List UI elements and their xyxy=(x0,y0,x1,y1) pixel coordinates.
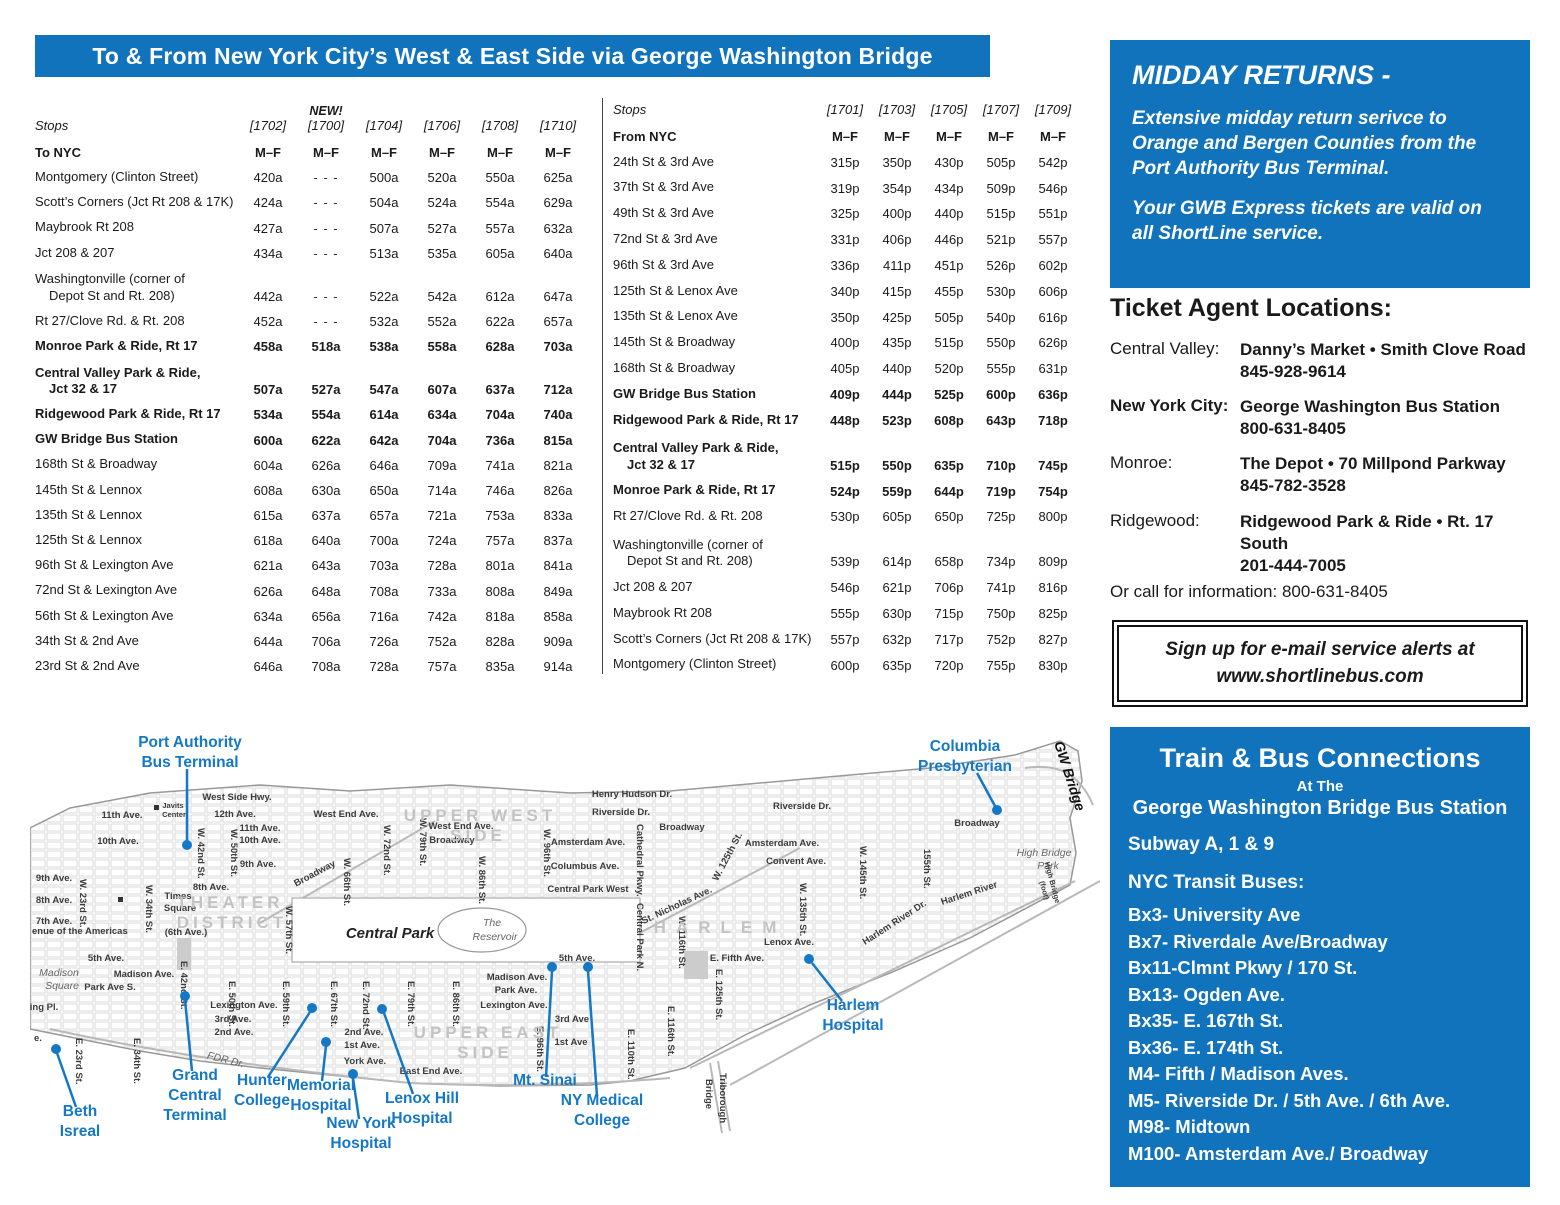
time-cell: 539p xyxy=(819,554,871,572)
time-cell: 602p xyxy=(1027,258,1079,276)
time-cell: 828a xyxy=(471,634,529,652)
time-cell: 551p xyxy=(1027,206,1079,224)
route-number: [1700] xyxy=(297,118,355,133)
time-cell: 755p xyxy=(975,658,1027,676)
stop-name-line: Scott’s Corners (Jct Rt 208 & 17K) xyxy=(613,631,819,647)
day-label: M–F xyxy=(923,129,975,147)
time-cell: 400p xyxy=(871,206,923,224)
landmark-label: Presbyterian xyxy=(918,758,1012,775)
time-cell: 622a xyxy=(297,433,355,451)
ticket-agent-entry: New York City:George Washington Bus Stat… xyxy=(1110,396,1534,440)
map-street-label: Broadway xyxy=(954,818,1000,829)
map-street-label: 10th Ave. xyxy=(239,835,281,846)
time-cell: 745p xyxy=(1027,458,1079,476)
time-cell: 558a xyxy=(413,339,471,357)
bus-route-item: Bx3- University Ave xyxy=(1128,902,1512,929)
stop-name-cell: Central Valley Park & Ride,Jct 32 & 17 xyxy=(613,440,819,476)
landmark-dot xyxy=(377,1004,387,1014)
table-row: 56th St & Lexington Ave634a656a716a742a8… xyxy=(35,602,592,627)
time-cell: 600a xyxy=(239,433,297,451)
map-street-label: Broadway xyxy=(659,822,705,833)
time-cell: 424a xyxy=(239,195,297,213)
midday-returns-paragraph-2: Your GWB Express tickets are valid on al… xyxy=(1132,196,1508,246)
map-street-label: W. 42nd St. xyxy=(195,828,206,879)
time-cell: 325p xyxy=(819,206,871,224)
map-street-label: Cathedral Pkwy. xyxy=(634,824,645,897)
map-street-label: E. 116th St. xyxy=(665,1006,676,1057)
map-street-label: Columbus Ave. xyxy=(551,861,619,872)
route-header: [1707] xyxy=(975,102,1027,120)
email-alerts-signup-inner: Sign up for e-mail service alerts at www… xyxy=(1117,625,1523,702)
day-label: M–F xyxy=(819,129,871,147)
landmark-label: Hospital xyxy=(330,1135,391,1152)
agent-phone: 201-444-7005 xyxy=(1240,555,1534,577)
stop-name-cell: 145th St & Broadway xyxy=(613,334,819,353)
map-street-label: Reservoir xyxy=(473,931,518,943)
time-cell: 559p xyxy=(871,484,923,502)
time-cell: 455p xyxy=(923,284,975,302)
map-street-label: High Bridge xyxy=(1017,847,1072,859)
stop-name-line: 145th St & Lennox xyxy=(35,482,239,498)
stop-name-cell: 56th St & Lexington Ave xyxy=(35,608,239,627)
landmark-label: Columbia xyxy=(930,738,1001,755)
map-street-label: E. 42nd St. xyxy=(178,961,189,1010)
table-row: 34th St & 2nd Ave644a706a726a752a828a909… xyxy=(35,627,592,652)
map-street-label: Lexington Ave. xyxy=(210,1000,277,1011)
ticket-agent-entry: Monroe:The Depot • 70 Millpond Parkway84… xyxy=(1110,453,1534,497)
time-cell: 319p xyxy=(819,181,871,199)
stop-name-cell: Scott’s Corners (Jct Rt 208 & 17K) xyxy=(35,194,239,213)
stop-name-line: Ridgewood Park & Ride, Rt 17 xyxy=(613,412,819,428)
stop-name-line: 23rd St & 2nd Ave xyxy=(35,658,239,674)
route-number: [1702] xyxy=(239,118,297,133)
stop-name-cell: Jct 208 & 207 xyxy=(613,579,819,598)
stop-name-line: 49th St & 3rd Ave xyxy=(613,205,819,221)
stop-name-line: 168th St & Broadway xyxy=(613,360,819,376)
time-cell: 546p xyxy=(1027,181,1079,199)
table-row: Washingtonville (corner ofDepot St and R… xyxy=(35,264,592,307)
time-cell: 534a xyxy=(239,407,297,425)
table-row: 96th St & Lexington Ave621a643a703a728a8… xyxy=(35,551,592,576)
map-street-label: E. 34th St. xyxy=(131,1038,142,1084)
district-label: UPPER WEST xyxy=(404,806,556,825)
time-cell: 630p xyxy=(871,606,923,624)
ticket-agents-title: Ticket Agent Locations: xyxy=(1110,294,1534,323)
stop-name-cell: 168th St & Broadway xyxy=(613,360,819,379)
from-nyc-schedule-table: Stops[1701][1703][1705][1707][1709]From … xyxy=(613,96,1085,676)
stop-name-cell: Scott’s Corners (Jct Rt 208 & 17K) xyxy=(613,631,819,650)
day-label: M–F xyxy=(975,129,1027,147)
time-cell: 618a xyxy=(239,533,297,551)
time-cell: 515p xyxy=(819,458,871,476)
stop-name-line: Jct 32 & 17 xyxy=(35,381,239,397)
bus-route-item: Bx36- E. 174th St. xyxy=(1128,1035,1512,1062)
time-cell: 518a xyxy=(297,339,355,357)
stop-name-cell: Montgomery (Clinton Street) xyxy=(35,169,239,188)
agent-address: George Washington Bus Station xyxy=(1240,396,1500,418)
stop-name-cell: 135th St & Lenox Ave xyxy=(613,308,819,327)
time-cell: 718p xyxy=(1027,413,1079,431)
manhattan-map: West Side Hwy.11th Ave.JavitsCenter12th … xyxy=(30,733,1100,1200)
day-label: M–F xyxy=(355,145,413,163)
stop-name-cell: 145th St & Lennox xyxy=(35,482,239,501)
stop-name-line: 37th St & 3rd Ave xyxy=(613,179,819,195)
map-street-label: W. 66th St. xyxy=(341,858,352,906)
map-street-label: Riverside Dr. xyxy=(773,801,831,812)
landmark-label: Mt. Sinai xyxy=(513,1072,577,1089)
day-label: M–F xyxy=(871,129,923,147)
stop-name-cell: Montgomery (Clinton Street) xyxy=(613,656,819,675)
table-row: 24th St & 3rd Ave315p350p430p505p542p xyxy=(613,147,1085,173)
time-cell: 728a xyxy=(355,659,413,677)
map-street-label: Riverside Dr. xyxy=(592,807,650,818)
time-cell: 411p xyxy=(871,258,923,276)
time-cell: 626a xyxy=(239,584,297,602)
time-cell: 644p xyxy=(923,484,975,502)
map-street-label: West Side Hwy. xyxy=(202,792,271,803)
stop-name-cell: Rt 27/Clove Rd. & Rt. 208 xyxy=(35,313,239,332)
time-cell: 400p xyxy=(819,335,871,353)
stop-name-line: 135th St & Lennox xyxy=(35,507,239,523)
map-street-label: E. Fifth Ave. xyxy=(710,953,764,964)
time-cell: 833a xyxy=(529,508,587,526)
map-street-label: 8th Ave. xyxy=(193,882,229,893)
table-row: GW Bridge Bus Station600a622a642a704a736… xyxy=(35,425,592,450)
table-row: 145th St & Broadway400p435p515p550p626p xyxy=(613,328,1085,354)
time-cell: 640a xyxy=(297,533,355,551)
time-cell: 523p xyxy=(871,413,923,431)
time-cell: 841a xyxy=(529,558,587,576)
signup-url: www.shortlinebus.com xyxy=(1125,664,1515,691)
route-header: NEW![1700] xyxy=(297,104,355,136)
time-cell: 440p xyxy=(871,361,923,379)
time-cell: 637a xyxy=(297,508,355,526)
time-cell: 821a xyxy=(529,458,587,476)
table-row: Maybrook Rt 208427a- - -507a527a557a632a xyxy=(35,213,592,238)
map-street-label: E. 59th St. xyxy=(280,981,291,1027)
landmark-dot xyxy=(307,1003,317,1013)
agent-phone: 800-631-8405 xyxy=(1240,418,1500,440)
time-cell: 816p xyxy=(1027,580,1079,598)
map-street-label: Convent Ave. xyxy=(766,856,826,867)
table-row: Central Valley Park & Ride,Jct 32 & 1750… xyxy=(35,357,592,400)
landmark-dot xyxy=(51,1044,61,1054)
stop-name-line: Maybrook Rt 208 xyxy=(35,219,239,235)
time-cell: 752a xyxy=(413,634,471,652)
time-cell: 409p xyxy=(819,387,871,405)
time-cell: 520p xyxy=(923,361,975,379)
landmark-label: Lenox Hill xyxy=(385,1090,459,1107)
time-cell: 607a xyxy=(413,382,471,400)
time-cell: 657a xyxy=(529,314,587,332)
time-cell: 524a xyxy=(413,195,471,213)
stop-name-cell: Ridgewood Park & Ride, Rt 17 xyxy=(35,406,239,425)
landmark-label: Harlem xyxy=(827,997,880,1014)
stop-name-cell: 24th St & 3rd Ave xyxy=(613,154,819,173)
map-street-label: Central Park N. xyxy=(634,903,645,971)
landmark-label: Isreal xyxy=(60,1123,101,1140)
district-label: SIDE xyxy=(457,1043,513,1062)
table-row: 168th St & Broadway604a626a646a709a741a8… xyxy=(35,451,592,476)
stop-name-cell: Monroe Park & Ride, Rt 17 xyxy=(35,338,239,357)
time-cell: 540p xyxy=(975,310,1027,328)
district-label: HARLEM xyxy=(654,918,787,937)
stop-name-line: Montgomery (Clinton Street) xyxy=(35,169,239,185)
time-cell: 405p xyxy=(819,361,871,379)
time-cell: 830p xyxy=(1027,658,1079,676)
map-street-label: W. 72nd St. xyxy=(381,825,392,876)
stop-name-line: 72nd St & Lexington Ave xyxy=(35,582,239,598)
time-cell: 606p xyxy=(1027,284,1079,302)
time-cell: 757a xyxy=(471,533,529,551)
map-street-label: 11th Ave. xyxy=(101,810,142,821)
landmark-label: Hospital xyxy=(391,1110,452,1127)
time-cell: 542p xyxy=(1027,155,1079,173)
stop-name-line: Monroe Park & Ride, Rt 17 xyxy=(35,338,239,354)
time-cell: 614a xyxy=(355,407,413,425)
stop-name-line: Washingtonville (corner of xyxy=(613,537,819,553)
time-cell: - - - xyxy=(297,195,355,213)
table-row: Monroe Park & Ride, Rt 17458a518a538a558… xyxy=(35,332,592,357)
table-row: Scott’s Corners (Jct Rt 208 & 17K)557p63… xyxy=(613,624,1085,650)
time-cell: 434p xyxy=(923,181,975,199)
table-header-direction: From NYCM–FM–FM–FM–FM–F xyxy=(613,120,1085,147)
map-street-label: W. 86th St. xyxy=(476,856,487,904)
time-cell: 858a xyxy=(529,609,587,627)
time-cell: 643p xyxy=(975,413,1027,431)
bus-route-item: Bx13- Ogden Ave. xyxy=(1128,982,1512,1009)
time-cell: - - - xyxy=(297,221,355,239)
time-cell: 315p xyxy=(819,155,871,173)
table-row: 96th St & 3rd Ave336p411p451p526p602p xyxy=(613,250,1085,276)
time-cell: 714a xyxy=(413,483,471,501)
table-row: Ridgewood Park & Ride, Rt 17448p523p608p… xyxy=(613,405,1085,431)
map-street-label: Javits xyxy=(162,801,183,810)
time-cell: 446p xyxy=(923,232,975,250)
bus-route-item: M5- Riverside Dr. / 5th Ave. / 6th Ave. xyxy=(1128,1088,1512,1115)
time-cell: 733a xyxy=(413,584,471,602)
time-cell: 538a xyxy=(355,339,413,357)
map-street-label: 5th Ave. xyxy=(88,953,124,964)
time-cell: 808a xyxy=(471,584,529,602)
route-header: [1705] xyxy=(923,102,975,120)
map-street-label: 9th Ave. xyxy=(240,859,276,870)
agent-details: George Washington Bus Station800-631-840… xyxy=(1240,396,1500,440)
time-cell: 631p xyxy=(1027,361,1079,379)
time-cell: 717p xyxy=(923,632,975,650)
time-cell: 616p xyxy=(1027,310,1079,328)
stop-name-line: 168th St & Broadway xyxy=(35,456,239,472)
time-cell: 800p xyxy=(1027,509,1079,527)
time-cell: 646a xyxy=(355,458,413,476)
time-cell: 622a xyxy=(471,314,529,332)
time-cell: 605p xyxy=(871,509,923,527)
time-cell: 815a xyxy=(529,433,587,451)
time-cell: 634a xyxy=(239,609,297,627)
route-number: [1709] xyxy=(1027,102,1079,117)
stop-name-line: 96th St & 3rd Ave xyxy=(613,257,819,273)
time-cell: 650a xyxy=(355,483,413,501)
stop-name-line: Depot St and Rt. 208) xyxy=(613,553,819,569)
time-cell: - - - xyxy=(297,170,355,188)
time-cell: 331p xyxy=(819,232,871,250)
time-cell: 554a xyxy=(297,407,355,425)
map-street-label: West End Ave. xyxy=(313,809,378,820)
map-street-label: Park Ave. xyxy=(495,985,538,996)
agent-details: Danny’s Market • Smith Clove Road845-928… xyxy=(1240,339,1526,383)
time-cell: 600p xyxy=(819,658,871,676)
time-cell: 350p xyxy=(819,310,871,328)
time-cell: 507a xyxy=(239,382,297,400)
table-row: Montgomery (Clinton Street)600p635p720p7… xyxy=(613,650,1085,676)
time-cell: 522a xyxy=(355,289,413,307)
map-street-label: E. 23rd St. xyxy=(73,1038,84,1084)
table-row: Ridgewood Park & Ride, Rt 17534a554a614a… xyxy=(35,400,592,425)
stop-name-line: Jct 208 & 207 xyxy=(613,579,819,595)
stop-name-line: Montgomery (Clinton Street) xyxy=(613,656,819,672)
time-cell: 725p xyxy=(975,509,1027,527)
day-label: M–F xyxy=(297,145,355,163)
new-tag: NEW! xyxy=(297,104,355,118)
stop-name-line: Scott’s Corners (Jct Rt 208 & 17K) xyxy=(35,194,239,210)
time-cell: 706p xyxy=(923,580,975,598)
transit-bus-list: Bx3- University AveBx7- Riverdale Ave/Br… xyxy=(1128,902,1512,1167)
route-header: [1703] xyxy=(871,102,923,120)
time-cell: 632p xyxy=(871,632,923,650)
time-cell: 608p xyxy=(923,413,975,431)
map-street-label: E. 86th St. xyxy=(450,981,461,1027)
route-number: [1707] xyxy=(975,102,1027,117)
time-cell: 809p xyxy=(1027,554,1079,572)
landmark-label: Hospital xyxy=(822,1017,883,1034)
map-street-label: Lenox Ave. xyxy=(764,937,814,948)
time-cell: 635p xyxy=(923,458,975,476)
map-street-label: Center xyxy=(162,810,186,819)
route-header: [1704] xyxy=(355,118,413,136)
district-label: UPPER EAST xyxy=(414,1023,563,1042)
time-cell: 427a xyxy=(239,221,297,239)
stop-name-line: Central Valley Park & Ride, xyxy=(35,365,239,381)
map-street-label: Henry Hudson Dr. xyxy=(592,789,672,800)
table-row: 145th St & Lennox608a630a650a714a746a826… xyxy=(35,476,592,501)
time-cell: 634a xyxy=(413,407,471,425)
map-street-label: Park Ave S. xyxy=(84,982,136,993)
table-row: 72nd St & Lexington Ave626a648a708a733a8… xyxy=(35,576,592,601)
stop-name-cell: Washingtonville (corner ofDepot St and R… xyxy=(35,271,239,307)
map-street-label: Bridge xyxy=(703,1079,714,1109)
time-cell: 740a xyxy=(529,407,587,425)
time-cell: 430p xyxy=(923,155,975,173)
agent-location: Ridgewood: xyxy=(1110,511,1240,577)
landmark-label: Terminal xyxy=(163,1107,226,1124)
time-cell: - - - xyxy=(297,289,355,307)
time-cell: 532a xyxy=(355,314,413,332)
map-street-label: Square xyxy=(45,980,79,992)
stop-name-line: 125th St & Lennox xyxy=(35,532,239,548)
landmark-label: Hunter xyxy=(237,1072,287,1089)
map-street-label: 8th Ave. xyxy=(36,895,72,906)
map-street-label: 11th Ave. xyxy=(239,823,280,834)
time-cell: 837a xyxy=(529,533,587,551)
time-cell: 420a xyxy=(239,170,297,188)
map-street-label: 1st Ave. xyxy=(344,1040,380,1051)
agent-location: Central Valley: xyxy=(1110,339,1240,383)
info-phone-line: Or call for information: 800-631-8405 xyxy=(1110,582,1388,602)
time-cell: - - - xyxy=(297,246,355,264)
train-bus-connections-box: Train & Bus Connections At The George Wa… xyxy=(1110,727,1530,1187)
time-cell: 442a xyxy=(239,289,297,307)
bus-route-item: M100- Amsterdam Ave./ Broadway xyxy=(1128,1141,1512,1168)
stop-name-line: GW Bridge Bus Station xyxy=(613,386,819,402)
time-cell: 914a xyxy=(529,659,587,677)
stop-name-cell: GW Bridge Bus Station xyxy=(35,431,239,450)
stop-name-line: Washingtonville (corner of xyxy=(35,271,239,287)
time-cell: 712a xyxy=(529,382,587,400)
time-cell: 801a xyxy=(471,558,529,576)
stops-header-label: Stops xyxy=(613,102,819,120)
ticket-agent-locations: Ticket Agent Locations: Central Valley:D… xyxy=(1110,294,1534,590)
time-cell: 648a xyxy=(297,584,355,602)
time-cell: 530p xyxy=(819,509,871,527)
map-street-label: 155th St. xyxy=(921,849,932,889)
day-label: M–F xyxy=(471,145,529,163)
time-cell: 736a xyxy=(471,433,529,451)
time-cell: 700a xyxy=(355,533,413,551)
time-cell: 425p xyxy=(871,310,923,328)
time-cell: 621p xyxy=(871,580,923,598)
landmark-label: Port Authority xyxy=(138,734,242,751)
stop-name-cell: Maybrook Rt 208 xyxy=(35,219,239,238)
agent-address: Danny’s Market • Smith Clove Road xyxy=(1240,339,1526,361)
time-cell: 435p xyxy=(871,335,923,353)
time-cell: 552a xyxy=(413,314,471,332)
time-cell: - - - xyxy=(297,314,355,332)
stop-name-line: GW Bridge Bus Station xyxy=(35,431,239,447)
map-street-label: E. 72nd St. xyxy=(360,981,371,1030)
table-row: 72nd St & 3rd Ave331p406p446p521p557p xyxy=(613,224,1085,250)
stop-name-line: Jct 32 & 17 xyxy=(613,457,819,473)
time-cell: 835a xyxy=(471,659,529,677)
map-street-label: 12th Ave. xyxy=(214,809,256,820)
table-header-routes: Stops[1702]NEW![1700][1704][1706][1708][… xyxy=(35,96,592,136)
stop-name-cell: Jct 208 & 207 xyxy=(35,245,239,264)
stop-name-line: Monroe Park & Ride, Rt 17 xyxy=(613,482,819,498)
table-row: 168th St & Broadway405p440p520p555p631p xyxy=(613,353,1085,379)
table-divider xyxy=(602,98,603,674)
time-cell: 719p xyxy=(975,484,1027,502)
agent-address: The Depot • 70 Millpond Parkway xyxy=(1240,453,1506,475)
time-cell: 708a xyxy=(297,659,355,677)
agent-location: Monroe: xyxy=(1110,453,1240,497)
time-cell: 658p xyxy=(923,554,975,572)
time-cell: 555p xyxy=(819,606,871,624)
time-cell: 527a xyxy=(413,221,471,239)
schedule-title-banner: To & From New York City’s West & East Si… xyxy=(35,35,990,77)
time-cell: 728a xyxy=(413,558,471,576)
stop-name-cell: 96th St & Lexington Ave xyxy=(35,557,239,576)
table-row: 23rd St & 2nd Ave646a708a728a757a835a914… xyxy=(35,652,592,677)
stop-name-cell: 72nd St & Lexington Ave xyxy=(35,582,239,601)
route-number: [1706] xyxy=(413,118,471,133)
agent-address: Ridgewood Park & Ride • Rt. 17 South xyxy=(1240,511,1534,555)
landmark-dot xyxy=(182,840,192,850)
table-row: 135th St & Lennox615a637a657a721a753a833… xyxy=(35,501,592,526)
table-row: Rt 27/Clove Rd. & Rt. 208530p605p650p725… xyxy=(613,502,1085,528)
time-cell: 656a xyxy=(297,609,355,627)
time-cell: 636p xyxy=(1027,387,1079,405)
time-cell: 612a xyxy=(471,289,529,307)
time-cell: 629a xyxy=(529,195,587,213)
